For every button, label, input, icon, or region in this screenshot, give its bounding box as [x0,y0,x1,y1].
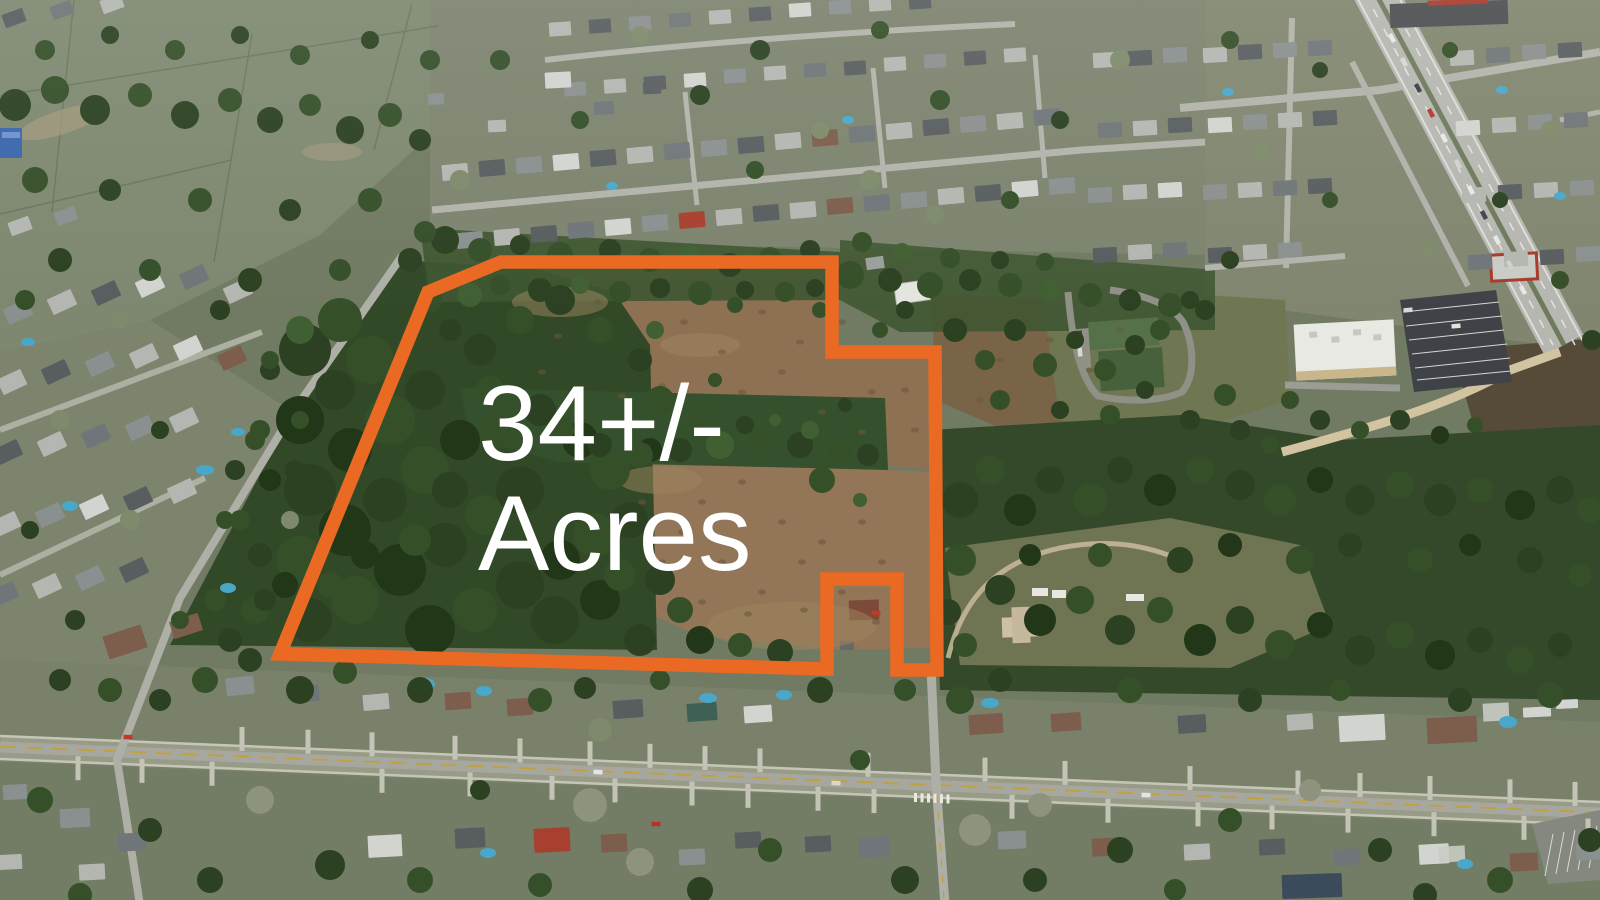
acreage-label-line2: Acres [478,473,752,593]
acreage-label-line1: 34+/- [478,363,725,483]
aerial-photo: 34+/- Acres [0,0,1600,900]
atmospheric-haze [0,0,1600,900]
screenshot-root: 34+/- Acres [0,0,1600,900]
